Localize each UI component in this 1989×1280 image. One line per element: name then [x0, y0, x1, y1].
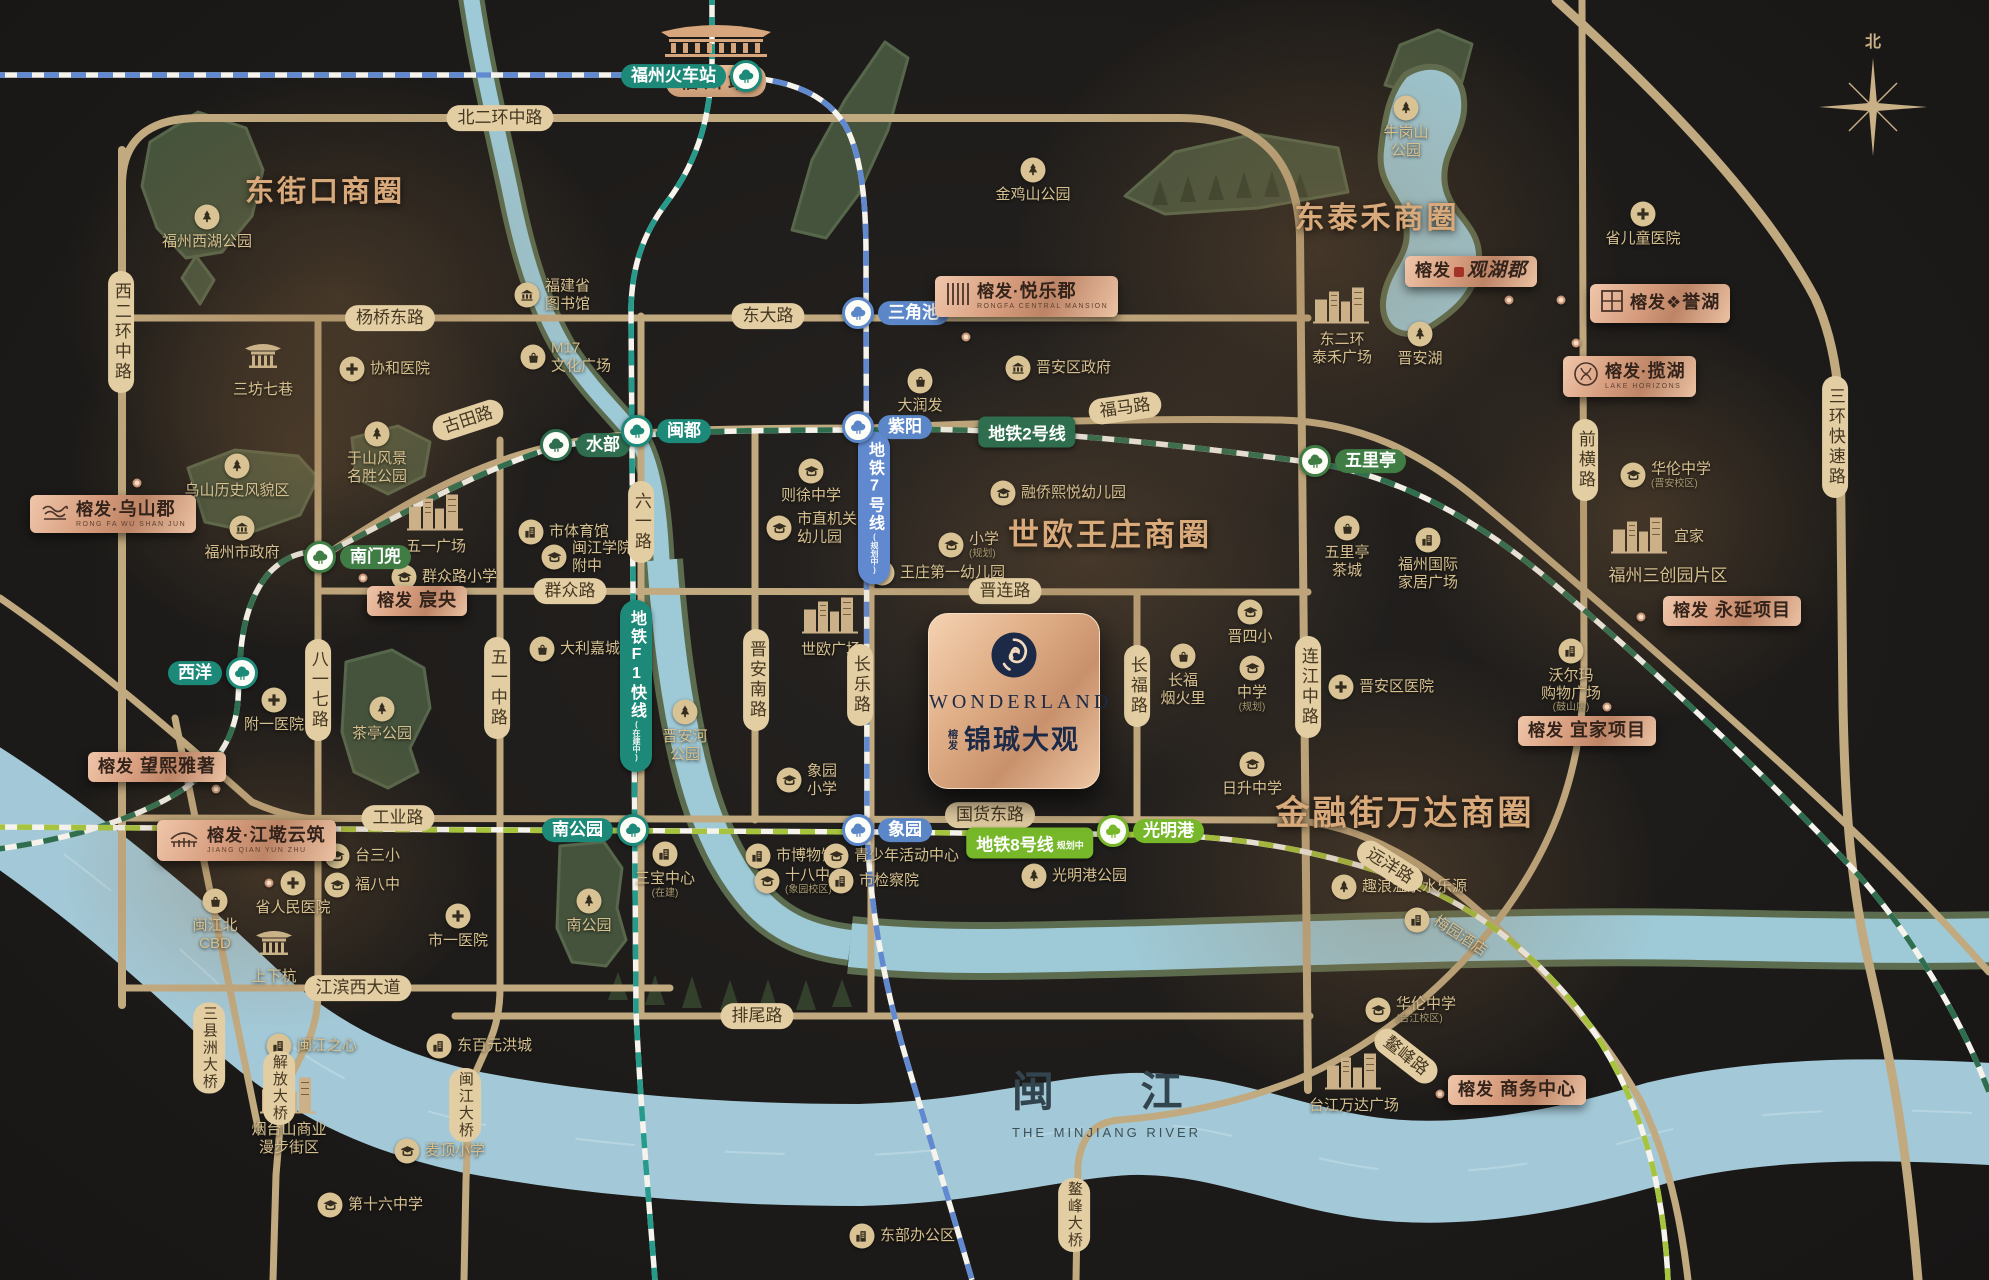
road-label: 北二环中路 [447, 105, 554, 131]
school-icon [991, 481, 1016, 506]
metro-station-icon [304, 541, 336, 573]
metro-station: 紫阳 [842, 411, 874, 443]
brand-logotype: 榕发 [1528, 721, 1564, 740]
road-label: 晋安南路 [743, 629, 769, 731]
poi-sublabel: (晋安校区) [1651, 478, 1711, 490]
poi-marker [340, 357, 365, 382]
brand-logotype: 榕发 [98, 757, 134, 776]
road-label: 东大路 [732, 303, 805, 329]
poi-marker [515, 283, 540, 308]
cross-icon [446, 904, 471, 929]
project-leader-dot [1505, 296, 1514, 305]
road-label: 三环快速路 [1822, 376, 1848, 498]
poi-label: 市一医院 [428, 932, 488, 950]
school-icon [1240, 752, 1265, 777]
metro-station-icon [1299, 445, 1331, 477]
bag-icon [1335, 516, 1360, 541]
project-badge-guanhujun: 榕发观湖郡 [1405, 256, 1537, 287]
project-leader-dot [1557, 296, 1566, 305]
map-canvas: 北 福州 [0, 0, 1989, 1280]
bldg-icon [1416, 528, 1441, 553]
poi-marker [939, 533, 964, 558]
poi-marker [446, 904, 471, 929]
poi-label: 象园小学 [807, 762, 837, 797]
train-station-icon [657, 20, 775, 58]
poi-marker [1240, 752, 1265, 777]
bridge-icon [167, 825, 201, 856]
school-icon [799, 459, 824, 484]
metro-station: 南门兜 [304, 541, 336, 573]
project-name: 观湖郡 [1467, 260, 1527, 281]
poi-marker [530, 637, 555, 662]
river-label: 闽 江 THE MINJIANG RIVER [1012, 1058, 1221, 1140]
poi-label: 晋安湖 [1397, 350, 1442, 368]
tree-icon [673, 700, 698, 725]
bldglg-icon [1611, 516, 1669, 559]
wonderland-project-logo: WONDERLAND 榕发锦珹大观 [928, 613, 1100, 789]
project-leader-dot [212, 785, 221, 794]
road-label: 鳌峰大桥 [1058, 1178, 1090, 1252]
brand-logotype: 榕发 [977, 282, 1013, 301]
road-label: 八一七路 [305, 639, 331, 741]
wave-icon [40, 501, 70, 528]
tree-icon [1394, 96, 1419, 121]
poi-marker [802, 596, 860, 639]
business-circle-label: 东街口商圈 [245, 168, 405, 210]
bldg-icon [1405, 908, 1430, 933]
brand-seal-icon [1454, 267, 1464, 277]
area-label: 福州三创园片区 [1609, 566, 1728, 586]
poi-label: 三坊七巷 [233, 381, 293, 399]
project-badge-yuhu: 榕发❖誉湖 [1590, 284, 1730, 323]
compass-star-icon [1813, 52, 1933, 162]
poi-label: 中学(规划) [1237, 684, 1267, 713]
poi-marker [230, 516, 255, 541]
metro-station: 三角池 [842, 297, 874, 329]
poi-label: 五一广场 [406, 538, 466, 556]
poi-marker [1611, 516, 1669, 559]
poi-marker [370, 697, 395, 722]
project-name-en: LAKE HORIZONS [1605, 383, 1686, 391]
bldglg-icon [1325, 1052, 1383, 1095]
project-name: 宸央 [419, 590, 457, 610]
river-name-en: THE MINJIANG RIVER [1012, 1125, 1221, 1140]
poi-marker [542, 545, 567, 570]
metro-station-label: 西洋 [168, 661, 222, 685]
poi-marker [519, 520, 544, 545]
temple-icon [243, 340, 283, 375]
poi-marker [1332, 875, 1357, 900]
brand-logotype: 榕发 [207, 826, 243, 845]
project-badge-wangxi: 榕发望熙雅著 [88, 752, 226, 782]
poi-marker [799, 459, 824, 484]
metro-station: 五里亭 [1299, 445, 1331, 477]
bldg-icon [1559, 639, 1584, 664]
school-icon [325, 873, 350, 898]
metro-line-badge: 地铁8号线规划中 [966, 828, 1093, 859]
tree-icon [1022, 864, 1047, 889]
poi-marker [777, 768, 802, 793]
project-badge-wushanjun: 榕发·乌山郡RONG FA WU SHAN JUN [30, 495, 196, 533]
poi-label: 于山风景名胜公园 [347, 450, 407, 485]
bldglg-icon [407, 493, 465, 536]
road-label: 晋连路 [969, 578, 1042, 604]
temple-icon [254, 927, 294, 962]
poi-label: 烟台山商业漫步街区 [251, 1121, 326, 1156]
metro-station-icon [540, 429, 572, 461]
brand-logotype: 榕发 [1415, 261, 1451, 280]
poi-label: 麦顶小学 [425, 1142, 485, 1160]
road-label: 西二环中路 [108, 271, 134, 393]
bldg-icon [427, 1034, 452, 1059]
road-label: 闽江大桥 [449, 1068, 481, 1142]
bag-icon [203, 889, 228, 914]
poi-label: 闽江北CBD [192, 917, 237, 952]
road-label: 群众路 [534, 578, 607, 604]
cross-icon [262, 688, 287, 713]
river-name-cn: 闽 江 [1012, 1058, 1221, 1119]
metro-station-icon [621, 415, 653, 447]
project-leader-dot [133, 479, 142, 488]
metro-station-icon [842, 814, 874, 846]
metro-station: 闽都 [621, 415, 653, 447]
poi-marker [908, 369, 933, 394]
metro-station: 福州火车站 [730, 60, 762, 92]
bldg-icon [653, 842, 678, 867]
poi-label: 大润发 [897, 397, 942, 415]
poi-label: 上下杭 [251, 968, 296, 986]
poi-label: 第十六中学 [348, 1196, 423, 1214]
hatch-icon [945, 281, 971, 312]
poi-marker [1335, 516, 1360, 541]
poi-marker [1325, 1052, 1383, 1095]
poi-marker [395, 1139, 420, 1164]
project-name: 誉湖 [1682, 292, 1720, 312]
project-badge-chenyang: 榕发宸央 [367, 586, 467, 616]
road-label: 江滨西大道 [305, 975, 412, 1001]
poi-label: 融侨熙悦幼儿园 [1021, 484, 1126, 502]
poi-marker [243, 340, 283, 375]
poi-sublabel: (象园校区) [785, 884, 832, 896]
project-badge-lanhu: 榕发·揽湖LAKE HORIZONS [1563, 356, 1696, 397]
metro-station-icon [842, 411, 874, 443]
poi-label: 东部办公区 [880, 1227, 955, 1245]
road-label: 杨桥东路 [345, 305, 435, 331]
poi-label: 东百元洪城 [457, 1037, 532, 1055]
school-icon [1366, 998, 1391, 1023]
metro-line-badge: 地铁7号线(规划中) [858, 432, 890, 585]
poi-label: 市直机关幼儿园 [797, 510, 857, 545]
project-badge-jiangqian: 榕发·江墘云筑JIANG QIAN YUN ZHU [157, 820, 336, 861]
school-icon [1238, 600, 1263, 625]
poi-marker [1394, 96, 1419, 121]
poi-label: 乌山历史风貌区 [184, 482, 289, 500]
poi-label: 闽江学院附中 [572, 539, 632, 574]
metro-station-icon [842, 297, 874, 329]
brand-logotype: 榕发 [1673, 601, 1709, 620]
poi-marker [325, 873, 350, 898]
metro-station-label: 南公园 [542, 818, 613, 842]
road-label: 前横路 [1572, 419, 1598, 501]
grid-icon [1600, 289, 1624, 318]
project-leader-dot [265, 879, 274, 888]
poi-marker [1022, 864, 1047, 889]
poi-marker [991, 481, 1016, 506]
wonderland-brand-cn: 榕发 [948, 731, 960, 752]
road-label: 三县洲大桥 [193, 1003, 225, 1094]
school-icon [777, 768, 802, 793]
tree-icon [365, 422, 390, 447]
metro-station-icon [617, 814, 649, 846]
school-icon [824, 844, 849, 869]
road-label: 五一中路 [484, 637, 510, 739]
cross-icon [1329, 675, 1354, 700]
brand-logotype: 榕发 [377, 591, 413, 610]
poi-label: 南公园 [566, 917, 611, 935]
poi-marker [281, 871, 306, 896]
business-circle-label: 金融街万达商圈 [1276, 786, 1535, 835]
road-label: 工业路 [362, 805, 435, 831]
road-label: 国货东路 [945, 802, 1035, 828]
metro-station-label: 光明港 [1133, 819, 1204, 843]
poi-marker [1238, 600, 1263, 625]
project-leader-dot [1603, 703, 1612, 712]
project-badge-shangwu: 榕发商务中心 [1448, 1075, 1586, 1105]
road-label: 解放大桥 [263, 1051, 295, 1125]
metro-line-badge-status: (规划中) [870, 533, 879, 575]
school-icon [318, 1193, 343, 1218]
poi-sublabel: (规划) [1237, 702, 1267, 714]
bldg-icon [519, 520, 544, 545]
poi-label: 金鸡山公园 [995, 186, 1070, 204]
poi-label: 台三小 [355, 847, 400, 865]
poi-marker [673, 700, 698, 725]
business-circle-label: 东泰禾商圈 [1295, 193, 1460, 237]
metro-station-icon [226, 657, 258, 689]
poi-label: 茶亭公园 [352, 725, 412, 743]
poi-label: 华伦中学(晋安校区) [1651, 460, 1711, 489]
poi-label: 牛岗山公园 [1383, 124, 1428, 159]
poi-marker [1408, 322, 1433, 347]
poi-label: 光明港公园 [1052, 867, 1127, 885]
poi-label: 晋四小 [1227, 628, 1272, 646]
bag-icon [908, 369, 933, 394]
poi-label: 台江万达广场 [1309, 1097, 1399, 1115]
poi-label: 福八中 [355, 876, 400, 894]
project-leader-dot [1572, 339, 1581, 348]
project-name: 江墘云筑 [250, 825, 326, 845]
project-badge-yongyan: 榕发永延项目 [1663, 596, 1801, 626]
compass: 北 [1813, 28, 1933, 167]
poi-label: 十八中(象园校区) [785, 866, 832, 895]
tree-icon [1408, 322, 1433, 347]
wonderland-name: 榕发锦珹大观 [929, 718, 1099, 757]
metro-station-icon [730, 60, 762, 92]
project-name: 望熙雅著 [140, 756, 216, 776]
road-label: 六一路 [628, 481, 654, 563]
metro-station: 水部 [540, 429, 572, 461]
project-name: 宜家项目 [1570, 720, 1646, 740]
project-name: 揽湖 [1648, 361, 1686, 381]
poi-marker [1021, 158, 1046, 183]
business-circle-label: 世欧王庄商圈 [1008, 510, 1212, 555]
poi-marker [1006, 356, 1031, 381]
poi-marker [746, 844, 771, 869]
bag-icon [521, 345, 546, 370]
poi-marker [1405, 908, 1430, 933]
poi-label: 协和医院 [370, 360, 430, 378]
brand-logotype: 榕发 [1458, 1080, 1494, 1099]
poi-marker [653, 842, 678, 867]
poi-label: 三宝中心(在建) [635, 870, 695, 899]
poi-marker [262, 688, 287, 713]
poi-marker [427, 1034, 452, 1059]
project-name: 悦乐郡 [1020, 281, 1077, 301]
metro-line-badge: 地铁2号线 [978, 417, 1075, 448]
poi-label: 宜家 [1674, 528, 1704, 546]
gov-icon [230, 516, 255, 541]
poi-label: 市体育馆 [549, 523, 609, 541]
bag-icon [1171, 644, 1196, 669]
project-name: 商务中心 [1500, 1079, 1576, 1099]
project-badge-yijia: 榕发宜家项目 [1518, 716, 1656, 746]
bldglg-icon [802, 596, 860, 639]
poi-label: 华伦中学(台江校区) [1396, 995, 1456, 1024]
metro-station: 光明港 [1097, 815, 1129, 847]
poi-label: 附一医院 [244, 716, 304, 734]
school-icon [395, 1139, 420, 1164]
school-icon [1621, 463, 1646, 488]
poi-marker [1416, 528, 1441, 553]
tree-icon [1332, 875, 1357, 900]
tree-icon [1021, 158, 1046, 183]
metro-line-badge-status: 规划中 [1057, 841, 1084, 850]
poi-label: 晋安区政府 [1036, 359, 1111, 377]
school-icon [755, 869, 780, 894]
cross-icon [281, 871, 306, 896]
metro-line-badge-status: (在建中) [632, 720, 641, 762]
poi-label: 群众路小学 [422, 568, 497, 586]
poi-label: 长福烟火里 [1160, 672, 1205, 707]
bldglg-icon [1313, 286, 1371, 329]
poi-marker [521, 345, 546, 370]
road-label: 排尾路 [721, 1003, 794, 1029]
poi-label: 则徐中学 [781, 487, 841, 505]
poi-label: 东二环泰禾广场 [1312, 331, 1372, 366]
metro-station-label: 五里亭 [1335, 449, 1406, 473]
school-icon [1240, 656, 1265, 681]
tree-icon [577, 889, 602, 914]
road-label: 连江中路 [1295, 636, 1321, 738]
poi-marker [1313, 286, 1371, 329]
project-leader-dot [1637, 613, 1646, 622]
project-name-en: JIANG QIAN YUN ZHU [207, 847, 326, 855]
poi-label: 晋安区医院 [1359, 678, 1434, 696]
poi-marker [1366, 998, 1391, 1023]
bldg-icon [829, 869, 854, 894]
poi-label: M17文化广场 [551, 339, 611, 374]
brand-logotype: 榕发 [1630, 293, 1666, 312]
project-leader-dot [1436, 1090, 1445, 1099]
metro-line-badge: 地铁F1快线(在建中) [620, 600, 652, 772]
project-badge-yuelejun: 榕发·悦乐郡RONGFA CENTRAL MANSION [935, 276, 1118, 317]
cross-icon [340, 357, 365, 382]
poi-marker [254, 927, 294, 962]
metro-station-label: 南门兜 [340, 545, 411, 569]
project-leader-dot [962, 333, 971, 342]
poi-marker [318, 1193, 343, 1218]
poi-label: 福建省图书馆 [545, 277, 590, 312]
poi-marker [767, 516, 792, 541]
brand-logotype: 榕发 [1605, 362, 1641, 381]
poi-marker [225, 454, 250, 479]
poi-sublabel: (在建) [635, 888, 695, 900]
poi-marker [850, 1224, 875, 1249]
poi-marker [203, 889, 228, 914]
poi-label: 福州市政府 [204, 544, 279, 562]
gov-icon [1006, 356, 1031, 381]
poi-marker [1329, 675, 1354, 700]
metro-station-label: 闽都 [657, 419, 711, 443]
poi-sublabel: (鼓山店) [1541, 702, 1601, 714]
project-leader-dot [359, 574, 368, 583]
poi-label: 五里亭茶城 [1324, 544, 1369, 579]
poi-label: 闽江之心 [297, 1037, 357, 1055]
poi-label: 福州西湖公园 [162, 233, 252, 251]
project-name-en: RONG FA WU SHAN JUN [76, 521, 186, 529]
poi-sublabel: (台江校区) [1396, 1013, 1456, 1025]
poi-marker [1240, 656, 1265, 681]
bldg-icon [746, 844, 771, 869]
road-label: 长乐路 [847, 644, 873, 726]
wonderland-swirl-icon [987, 628, 1041, 682]
school-icon [542, 545, 567, 570]
poi-label: 市检察院 [859, 872, 919, 890]
poi-marker [1171, 644, 1196, 669]
metro-station-label: 紫阳 [878, 415, 932, 439]
poi-label: 大利嘉城 [560, 640, 620, 658]
school-icon [939, 533, 964, 558]
metro-station-label: 象园 [878, 818, 932, 842]
road-label: 长福路 [1124, 645, 1150, 727]
gov-icon [515, 283, 540, 308]
project-name: 乌山郡 [119, 499, 176, 519]
poi-marker [407, 493, 465, 536]
wonderland-brand: WONDERLAND [929, 691, 1099, 714]
metro-station: 象园 [842, 814, 874, 846]
poi-label: 日升中学 [1222, 780, 1282, 798]
tree-icon [195, 205, 220, 230]
bldg-icon [850, 1224, 875, 1249]
poi-label: 沃尔玛购物广场(鼓山店) [1541, 667, 1601, 714]
bag-icon [530, 637, 555, 662]
metro-station-icon [1097, 815, 1129, 847]
poi-label: 小学(规划) [969, 530, 999, 559]
poi-label: 青少年活动中心 [854, 847, 959, 865]
poi-marker [824, 844, 849, 869]
poi-marker [829, 869, 854, 894]
poi-label: 省人民医院 [255, 899, 330, 917]
compass-north-label: 北 [1813, 28, 1933, 52]
school-icon [767, 516, 792, 541]
tree-icon [225, 454, 250, 479]
poi-marker [1631, 202, 1656, 227]
poi-label: 省儿童医院 [1605, 230, 1680, 248]
poi-marker [755, 869, 780, 894]
tree-icon [370, 697, 395, 722]
metro-station: 南公园 [617, 814, 649, 846]
poi-label: 晋安河公园 [662, 728, 707, 763]
